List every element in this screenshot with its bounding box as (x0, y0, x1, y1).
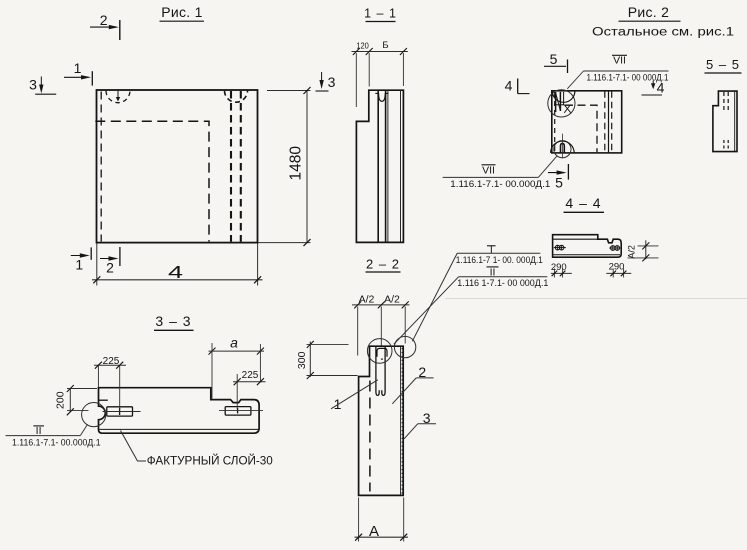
svg-text:ФАКТУРНЫЙ СЛОЙ-30: ФАКТУРНЫЙ СЛОЙ-30 (147, 455, 273, 468)
svg-text:а: а (230, 335, 238, 351)
svg-text:2: 2 (100, 12, 108, 28)
svg-text:290: 290 (609, 261, 625, 272)
svg-text:300: 300 (296, 351, 308, 369)
svg-text:VII: VII (613, 55, 626, 67)
svg-text:1: 1 (74, 60, 82, 76)
svg-text:Рис. 2: Рис. 2 (628, 4, 670, 20)
svg-text:200: 200 (55, 391, 67, 409)
svg-text:А/2: А/2 (384, 293, 400, 305)
svg-text:Рис. 1: Рис. 1 (161, 4, 203, 20)
svg-text:3: 3 (328, 74, 336, 90)
svg-text:4 – 4: 4 – 4 (565, 195, 601, 211)
svg-text:А: А (369, 523, 379, 540)
svg-text:5: 5 (555, 175, 563, 191)
svg-text:4: 4 (505, 78, 513, 94)
svg-text:1.116 1-7.1- 00 000Д.1: 1.116 1-7.1- 00 000Д.1 (457, 278, 548, 288)
svg-text:Б: Б (382, 40, 388, 51)
svg-text:4: 4 (168, 262, 183, 282)
svg-text:А/2: А/2 (627, 245, 637, 259)
svg-text:3 – 3: 3 – 3 (155, 313, 191, 329)
svg-text:1: 1 (75, 257, 83, 273)
svg-text:VII: VII (482, 165, 495, 177)
svg-text:1480: 1480 (288, 146, 305, 181)
svg-text:II: II (36, 425, 42, 437)
svg-text:2 – 2: 2 – 2 (366, 257, 400, 272)
svg-text:Остальное см. рис.1: Остальное см. рис.1 (592, 27, 734, 39)
svg-text:1 – 1: 1 – 1 (364, 7, 397, 21)
svg-text:2: 2 (106, 260, 114, 276)
svg-text:А/2: А/2 (359, 293, 375, 305)
svg-text:225: 225 (242, 370, 259, 381)
svg-text:5 – 5: 5 – 5 (706, 57, 740, 72)
svg-text:3: 3 (29, 77, 37, 93)
svg-text:4: 4 (657, 80, 665, 96)
svg-text:1.116.1-7 1- 00. 000Д.1: 1.116.1-7 1- 00. 000Д.1 (456, 255, 543, 265)
svg-text:5: 5 (550, 51, 558, 67)
svg-text:120: 120 (356, 41, 369, 51)
svg-text:1.116.1-7.1- 00.000Д.1: 1.116.1-7.1- 00.000Д.1 (450, 179, 550, 189)
svg-text:1: 1 (334, 396, 342, 412)
svg-text:1.116.1-7.1- 00.000Д.1: 1.116.1-7.1- 00.000Д.1 (12, 437, 101, 447)
